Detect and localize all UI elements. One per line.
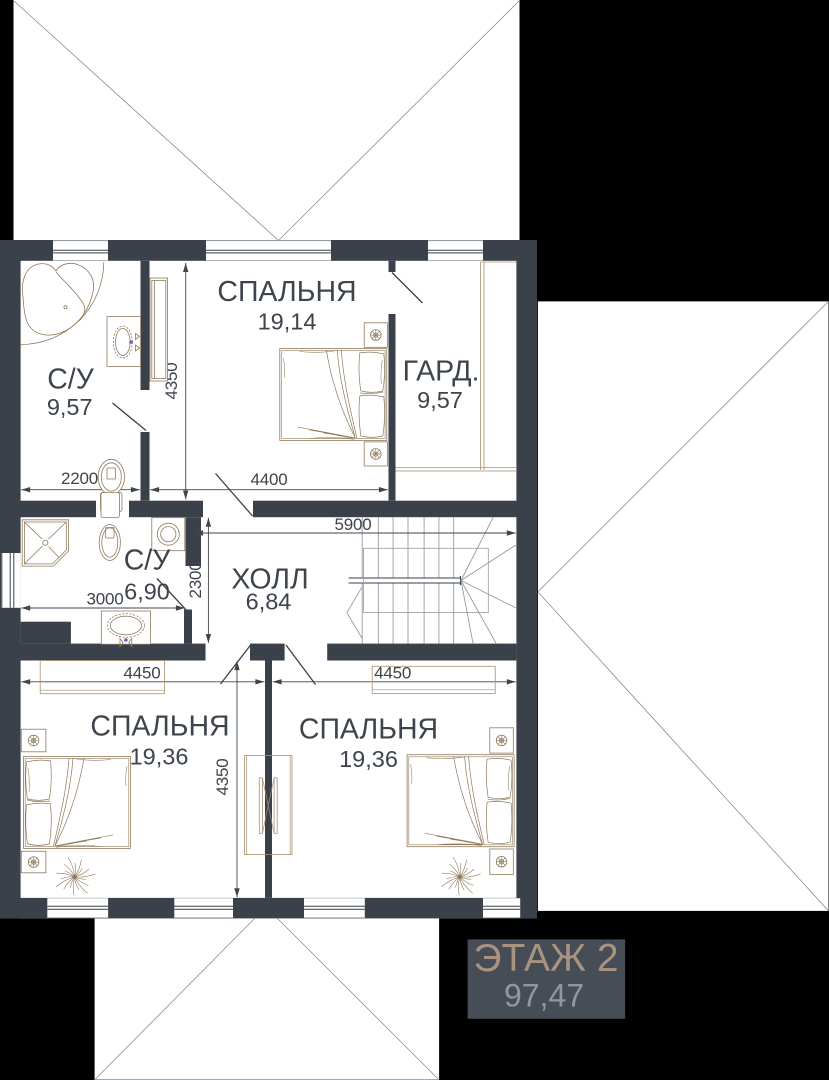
svg-text:С/У: С/У bbox=[124, 545, 172, 577]
svg-text:СПАЛЬНЯ: СПАЛЬНЯ bbox=[299, 714, 438, 746]
svg-text:СПАЛЬНЯ: СПАЛЬНЯ bbox=[217, 276, 356, 308]
svg-text:6,84: 6,84 bbox=[246, 589, 292, 615]
svg-text:4350: 4350 bbox=[213, 758, 232, 795]
svg-text:9,57: 9,57 bbox=[47, 394, 93, 420]
svg-text:19,36: 19,36 bbox=[339, 746, 398, 772]
svg-text:2200: 2200 bbox=[61, 469, 98, 488]
svg-text:6,90: 6,90 bbox=[124, 579, 170, 605]
svg-text:19,36: 19,36 bbox=[130, 744, 189, 770]
svg-text:4400: 4400 bbox=[250, 470, 287, 489]
svg-text:СПАЛЬНЯ: СПАЛЬНЯ bbox=[90, 711, 229, 743]
svg-text:3000: 3000 bbox=[86, 590, 123, 609]
svg-text:9,57: 9,57 bbox=[417, 387, 463, 413]
svg-text:ГАРД.: ГАРД. bbox=[403, 356, 480, 388]
svg-text:97,47: 97,47 bbox=[504, 978, 584, 1014]
svg-text:19,14: 19,14 bbox=[258, 309, 317, 335]
svg-text:5900: 5900 bbox=[334, 515, 371, 534]
svg-text:ЭТАЖ 2: ЭТАЖ 2 bbox=[473, 937, 618, 980]
svg-text:С/У: С/У bbox=[47, 363, 95, 395]
svg-text:4450: 4450 bbox=[123, 664, 160, 683]
svg-text:2300: 2300 bbox=[186, 561, 205, 598]
